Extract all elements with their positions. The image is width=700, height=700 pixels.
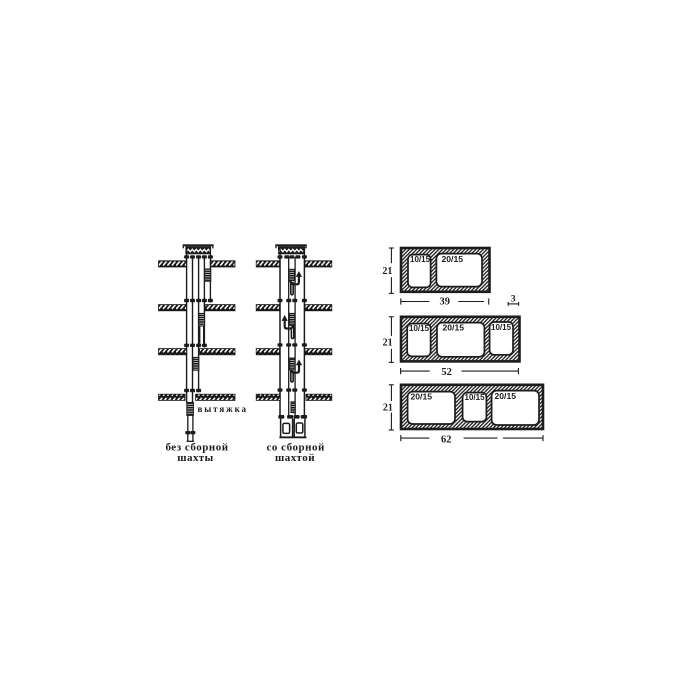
- svg-text:20/15: 20/15: [443, 323, 465, 333]
- svg-text:шахты: шахты: [177, 452, 214, 464]
- svg-text:10/15: 10/15: [410, 255, 431, 264]
- svg-text:20/15: 20/15: [411, 391, 433, 401]
- svg-text:21: 21: [382, 266, 392, 277]
- svg-text:39: 39: [440, 297, 451, 308]
- svg-text:3: 3: [511, 295, 516, 305]
- svg-text:21: 21: [383, 403, 393, 414]
- svg-text:10/15: 10/15: [465, 393, 486, 402]
- svg-text:20/15: 20/15: [442, 254, 464, 264]
- svg-text:52: 52: [441, 367, 452, 378]
- svg-text:20/15: 20/15: [495, 391, 517, 401]
- svg-text:10/15: 10/15: [409, 324, 430, 333]
- svg-text:вытяжка: вытяжка: [198, 404, 248, 414]
- svg-text:62: 62: [441, 434, 452, 445]
- svg-text:10/15: 10/15: [491, 323, 512, 332]
- svg-text:21: 21: [383, 337, 393, 348]
- svg-text:шахтой: шахтой: [275, 452, 315, 464]
